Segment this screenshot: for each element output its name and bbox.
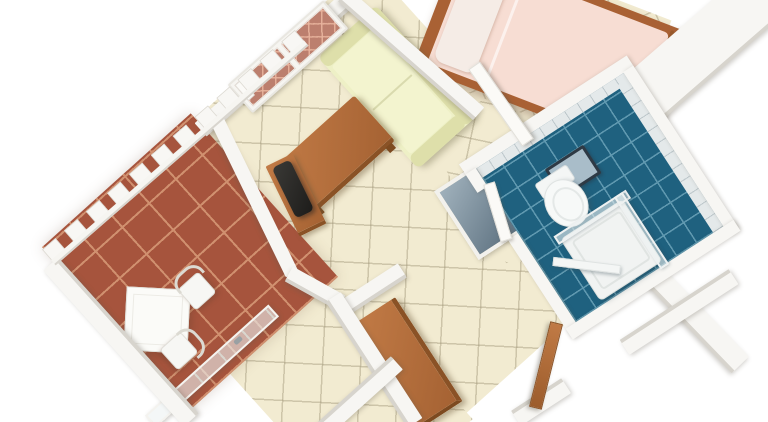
door-handle — [233, 335, 243, 345]
apartment-3d-render — [0, 0, 768, 422]
